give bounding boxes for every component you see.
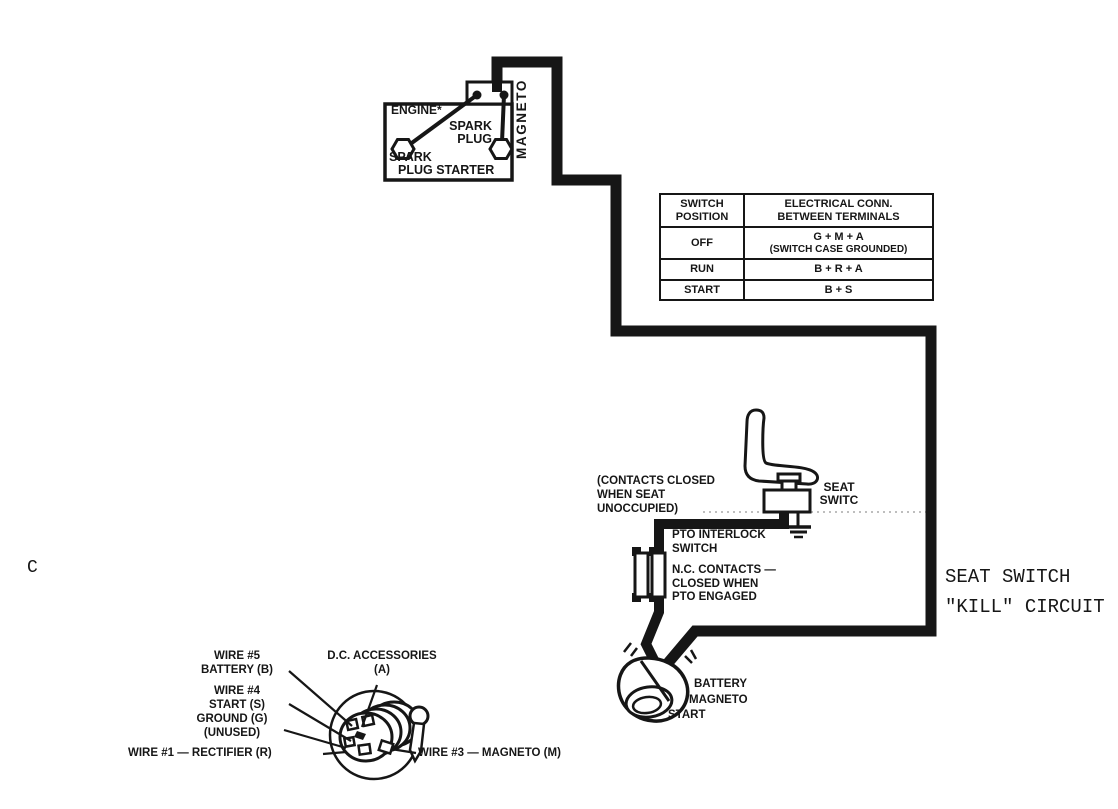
wire5-battery-label: WIRE #5 BATTERY (B) — [187, 650, 287, 677]
spark-plug-label: SPARK PLUG — [440, 120, 492, 146]
switch-position-table: SWITCH POSITION ELECTRICAL CONN. BETWEEN… — [659, 193, 934, 301]
col-header-switch-position: SWITCH POSITION — [660, 194, 744, 227]
engine-label: ENGINE* — [391, 104, 442, 118]
pto-interlock-label: PTO INTERLOCK SWITCH — [672, 529, 766, 556]
wire1-rectifier-label: WIRE #1 — RECTIFIER (R) — [128, 747, 272, 761]
wire3-magneto-label: WIRE #3 — MAGNETO (M) — [418, 747, 561, 761]
contacts-closed-note: (CONTACTS CLOSED WHEN SEAT UNOCCUPIED) — [597, 474, 715, 516]
spark-plug-starter-label: SPARK PLUG STARTER — [389, 151, 494, 177]
table-row-off: OFF G + M + A (SWITCH CASE GROUNDED) — [660, 227, 933, 259]
ground-symbol — [786, 512, 811, 537]
nc-contacts-label: N.C. CONTACTS — CLOSED WHEN PTO ENGAGED — [672, 564, 776, 605]
wiring-diagram-page: ENGINE* SPARK PLUG SPARK PLUG STARTER MA… — [0, 0, 1118, 809]
key-switch-rear-view — [330, 691, 428, 779]
table-header-row: SWITCH POSITION ELECTRICAL CONN. BETWEEN… — [660, 194, 933, 227]
magneto-label: MAGNETO — [514, 79, 529, 159]
wire4-start-label: WIRE #4 START (S) — [187, 685, 287, 712]
kill-circuit-caption: SEAT SWITCH "KILL" CIRCUIT — [945, 562, 1105, 622]
ignition-switch-labels: BATTERY MAGNETO START — [668, 677, 748, 724]
page-marker: C — [27, 562, 38, 576]
table-row-start: START B + S — [660, 280, 933, 301]
diagram-graphics — [0, 0, 1118, 809]
seat-switch-label: SEAT SWITC — [813, 481, 865, 507]
dc-accessories-label: D.C. ACCESSORIES (A) — [312, 650, 452, 677]
ground-unused-label: GROUND (G) (UNUSED) — [182, 713, 282, 740]
pto-interlock-connector — [632, 547, 665, 602]
col-header-electrical-conn: ELECTRICAL CONN. BETWEEN TERMINALS — [744, 194, 933, 227]
table-row-run: RUN B + R + A — [660, 259, 933, 280]
